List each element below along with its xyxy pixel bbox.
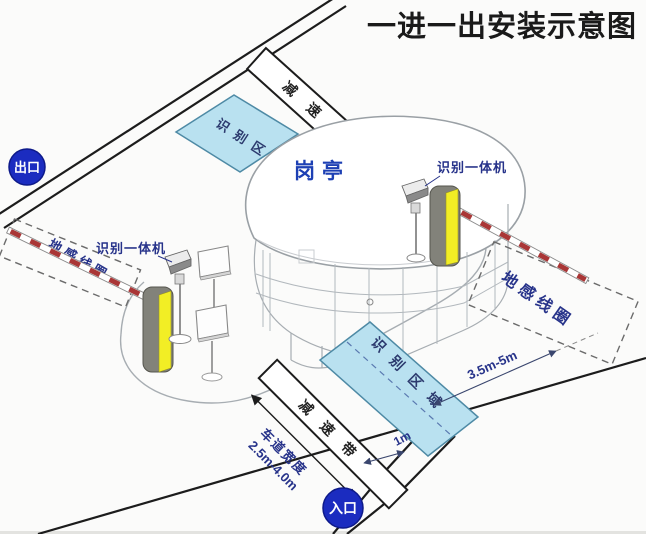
exit-badge-label: 出口 [14,160,40,175]
barrier-machine-left [143,287,173,372]
page-title: 一进一出安装示意图 [367,9,637,43]
diagram-page: 地感线圈 识别一体机 减速带 识别区域 [0,0,646,534]
exit-badge: 出口 [9,149,45,185]
reader-right-label: 识别一体机 [437,160,507,175]
entrance-badge-label: 入口 [329,500,357,516]
diagram-canvas: 地感线圈 识别一体机 减速带 识别区域 [0,0,646,534]
entrance-badge: 入口 [323,488,363,528]
reader-left-label: 识别一体机 [96,241,166,256]
booth-label: 岗亭 [294,159,350,183]
barrier-machine-right [430,186,460,266]
